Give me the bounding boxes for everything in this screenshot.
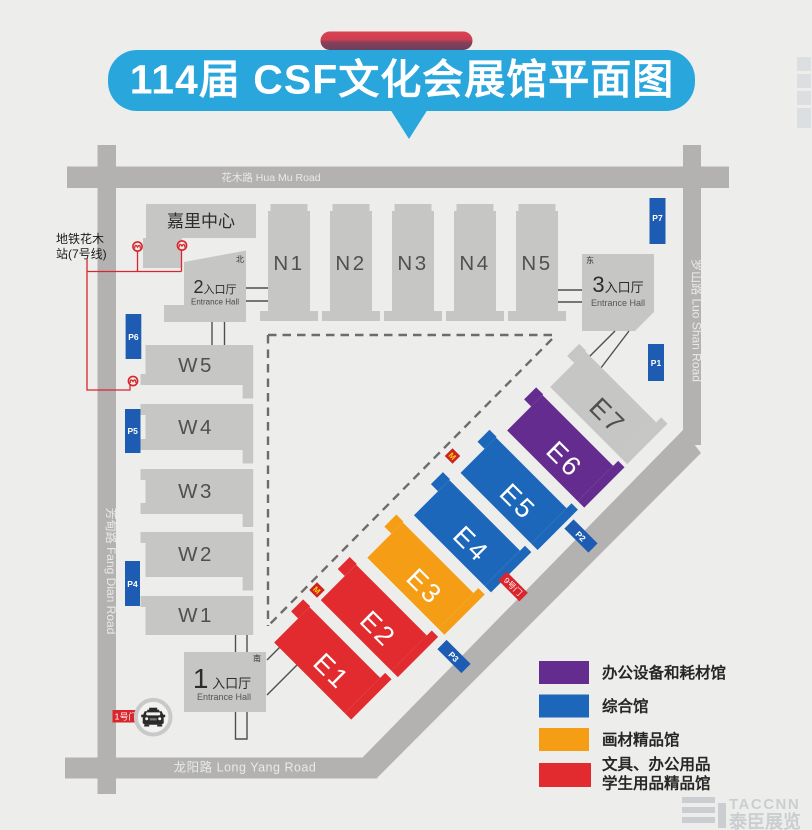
svg-text:东: 东 — [586, 255, 594, 265]
svg-text:P6: P6 — [128, 332, 139, 342]
svg-text:P5: P5 — [127, 426, 138, 436]
svg-text:W4: W4 — [178, 416, 214, 439]
svg-text:办公设备和耗材馆: 办公设备和耗材馆 — [602, 663, 726, 682]
svg-text:N4: N4 — [459, 252, 490, 275]
svg-text:罗山路 Luo Shan Road: 罗山路 Luo Shan Road — [690, 259, 705, 382]
svg-text:南: 南 — [253, 653, 261, 663]
svg-text:W3: W3 — [178, 480, 214, 503]
svg-text:114届 CSF文化会展馆平面图: 114届 CSF文化会展馆平面图 — [130, 57, 675, 103]
svg-text:P4: P4 — [127, 579, 138, 589]
svg-text:N5: N5 — [521, 252, 552, 275]
svg-text:龙阳路 Long Yang Road: 龙阳路 Long Yang Road — [174, 760, 317, 775]
svg-text:Entrance Hall: Entrance Hall — [591, 298, 645, 308]
svg-text:综合馆: 综合馆 — [602, 697, 649, 716]
svg-text:Entrance Hall: Entrance Hall — [197, 692, 251, 702]
svg-text:W2: W2 — [178, 543, 214, 566]
svg-text:芳甸路 Fang Dian Road: 芳甸路 Fang Dian Road — [104, 508, 119, 635]
svg-text:N1: N1 — [273, 252, 304, 275]
svg-text:N2: N2 — [335, 252, 366, 275]
svg-text:嘉里中心: 嘉里中心 — [167, 212, 235, 231]
svg-text:Entrance Hall: Entrance Hall — [191, 298, 239, 307]
svg-text:泰臣展览: 泰臣展览 — [728, 811, 801, 830]
svg-text:W5: W5 — [178, 354, 214, 377]
svg-text:P7: P7 — [652, 213, 663, 223]
svg-text:TACCNN: TACCNN — [729, 796, 800, 813]
svg-text:花木路 Hua Mu Road: 花木路 Hua Mu Road — [221, 171, 320, 184]
svg-text:北: 北 — [236, 255, 244, 264]
svg-text:N3: N3 — [397, 252, 428, 275]
svg-text:P1: P1 — [651, 358, 662, 368]
svg-text:画材精品馆: 画材精品馆 — [602, 730, 680, 749]
svg-text:W1: W1 — [178, 604, 214, 627]
